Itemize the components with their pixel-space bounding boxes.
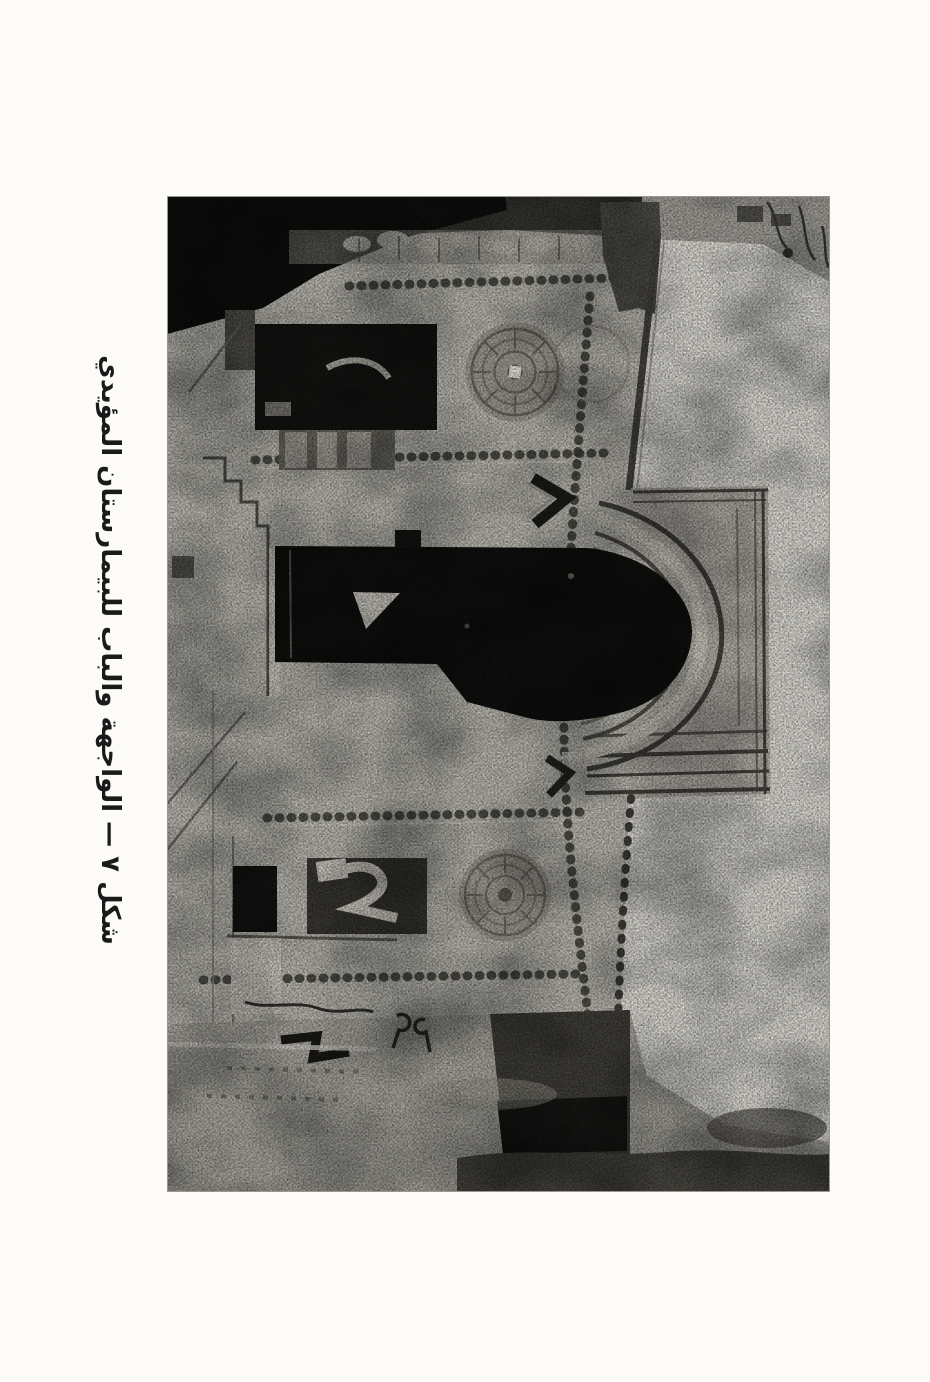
- figure-caption: شكل ٧ — الواجهة والباب للبيمارستان المؤي…: [84, 445, 136, 945]
- print-texture: [167, 196, 830, 1192]
- figure-photo: [167, 196, 830, 1192]
- book-page: شكل ٧ — الواجهة والباب للبيمارستان المؤي…: [0, 0, 930, 1382]
- figure-photo-plate: [167, 196, 830, 1192]
